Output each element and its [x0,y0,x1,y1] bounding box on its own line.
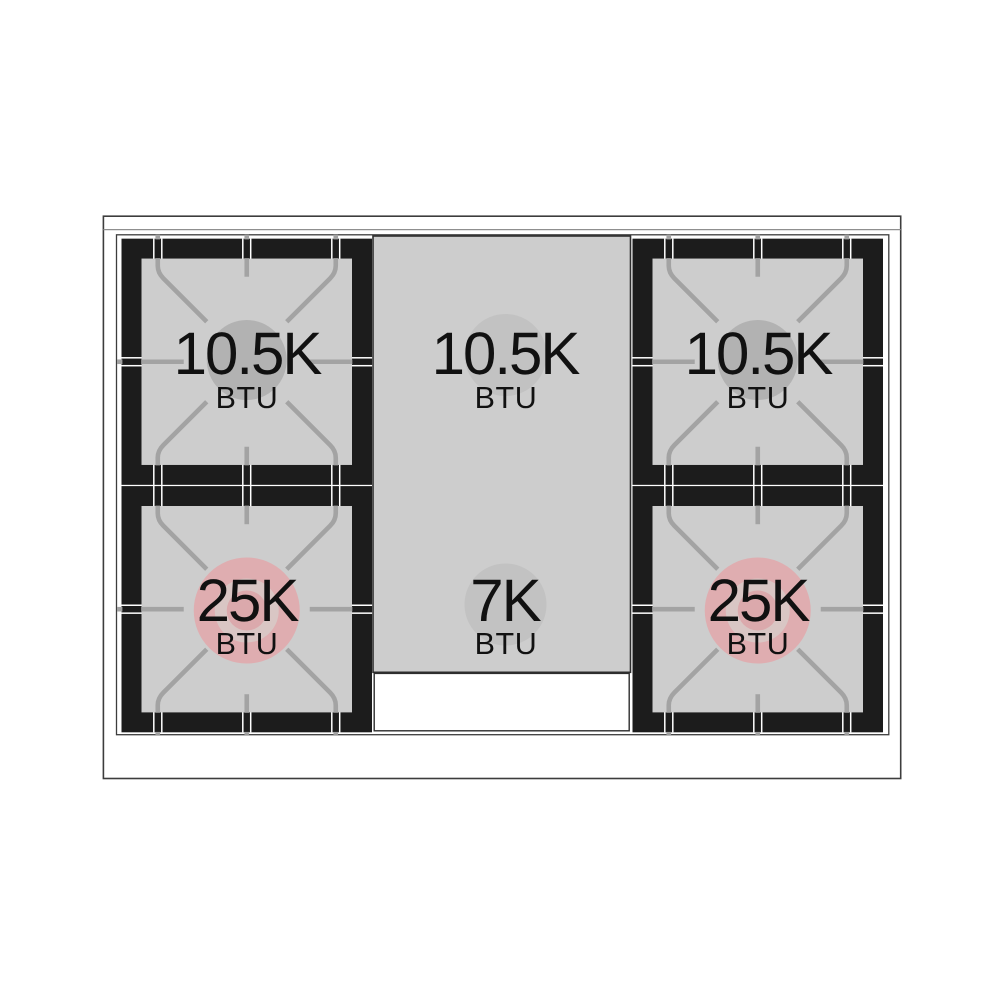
svg-text:BTU: BTU [727,381,790,415]
svg-text:10.5K: 10.5K [174,320,323,387]
svg-text:BTU: BTU [216,381,279,415]
svg-text:BTU: BTU [727,627,790,661]
svg-text:10.5K: 10.5K [432,320,581,387]
svg-text:BTU: BTU [475,381,538,415]
svg-text:25K: 25K [197,567,300,634]
svg-text:BTU: BTU [216,627,279,661]
svg-text:10.5K: 10.5K [685,320,834,387]
svg-text:25K: 25K [708,567,811,634]
svg-text:BTU: BTU [475,627,538,661]
svg-text:7K: 7K [470,567,541,634]
